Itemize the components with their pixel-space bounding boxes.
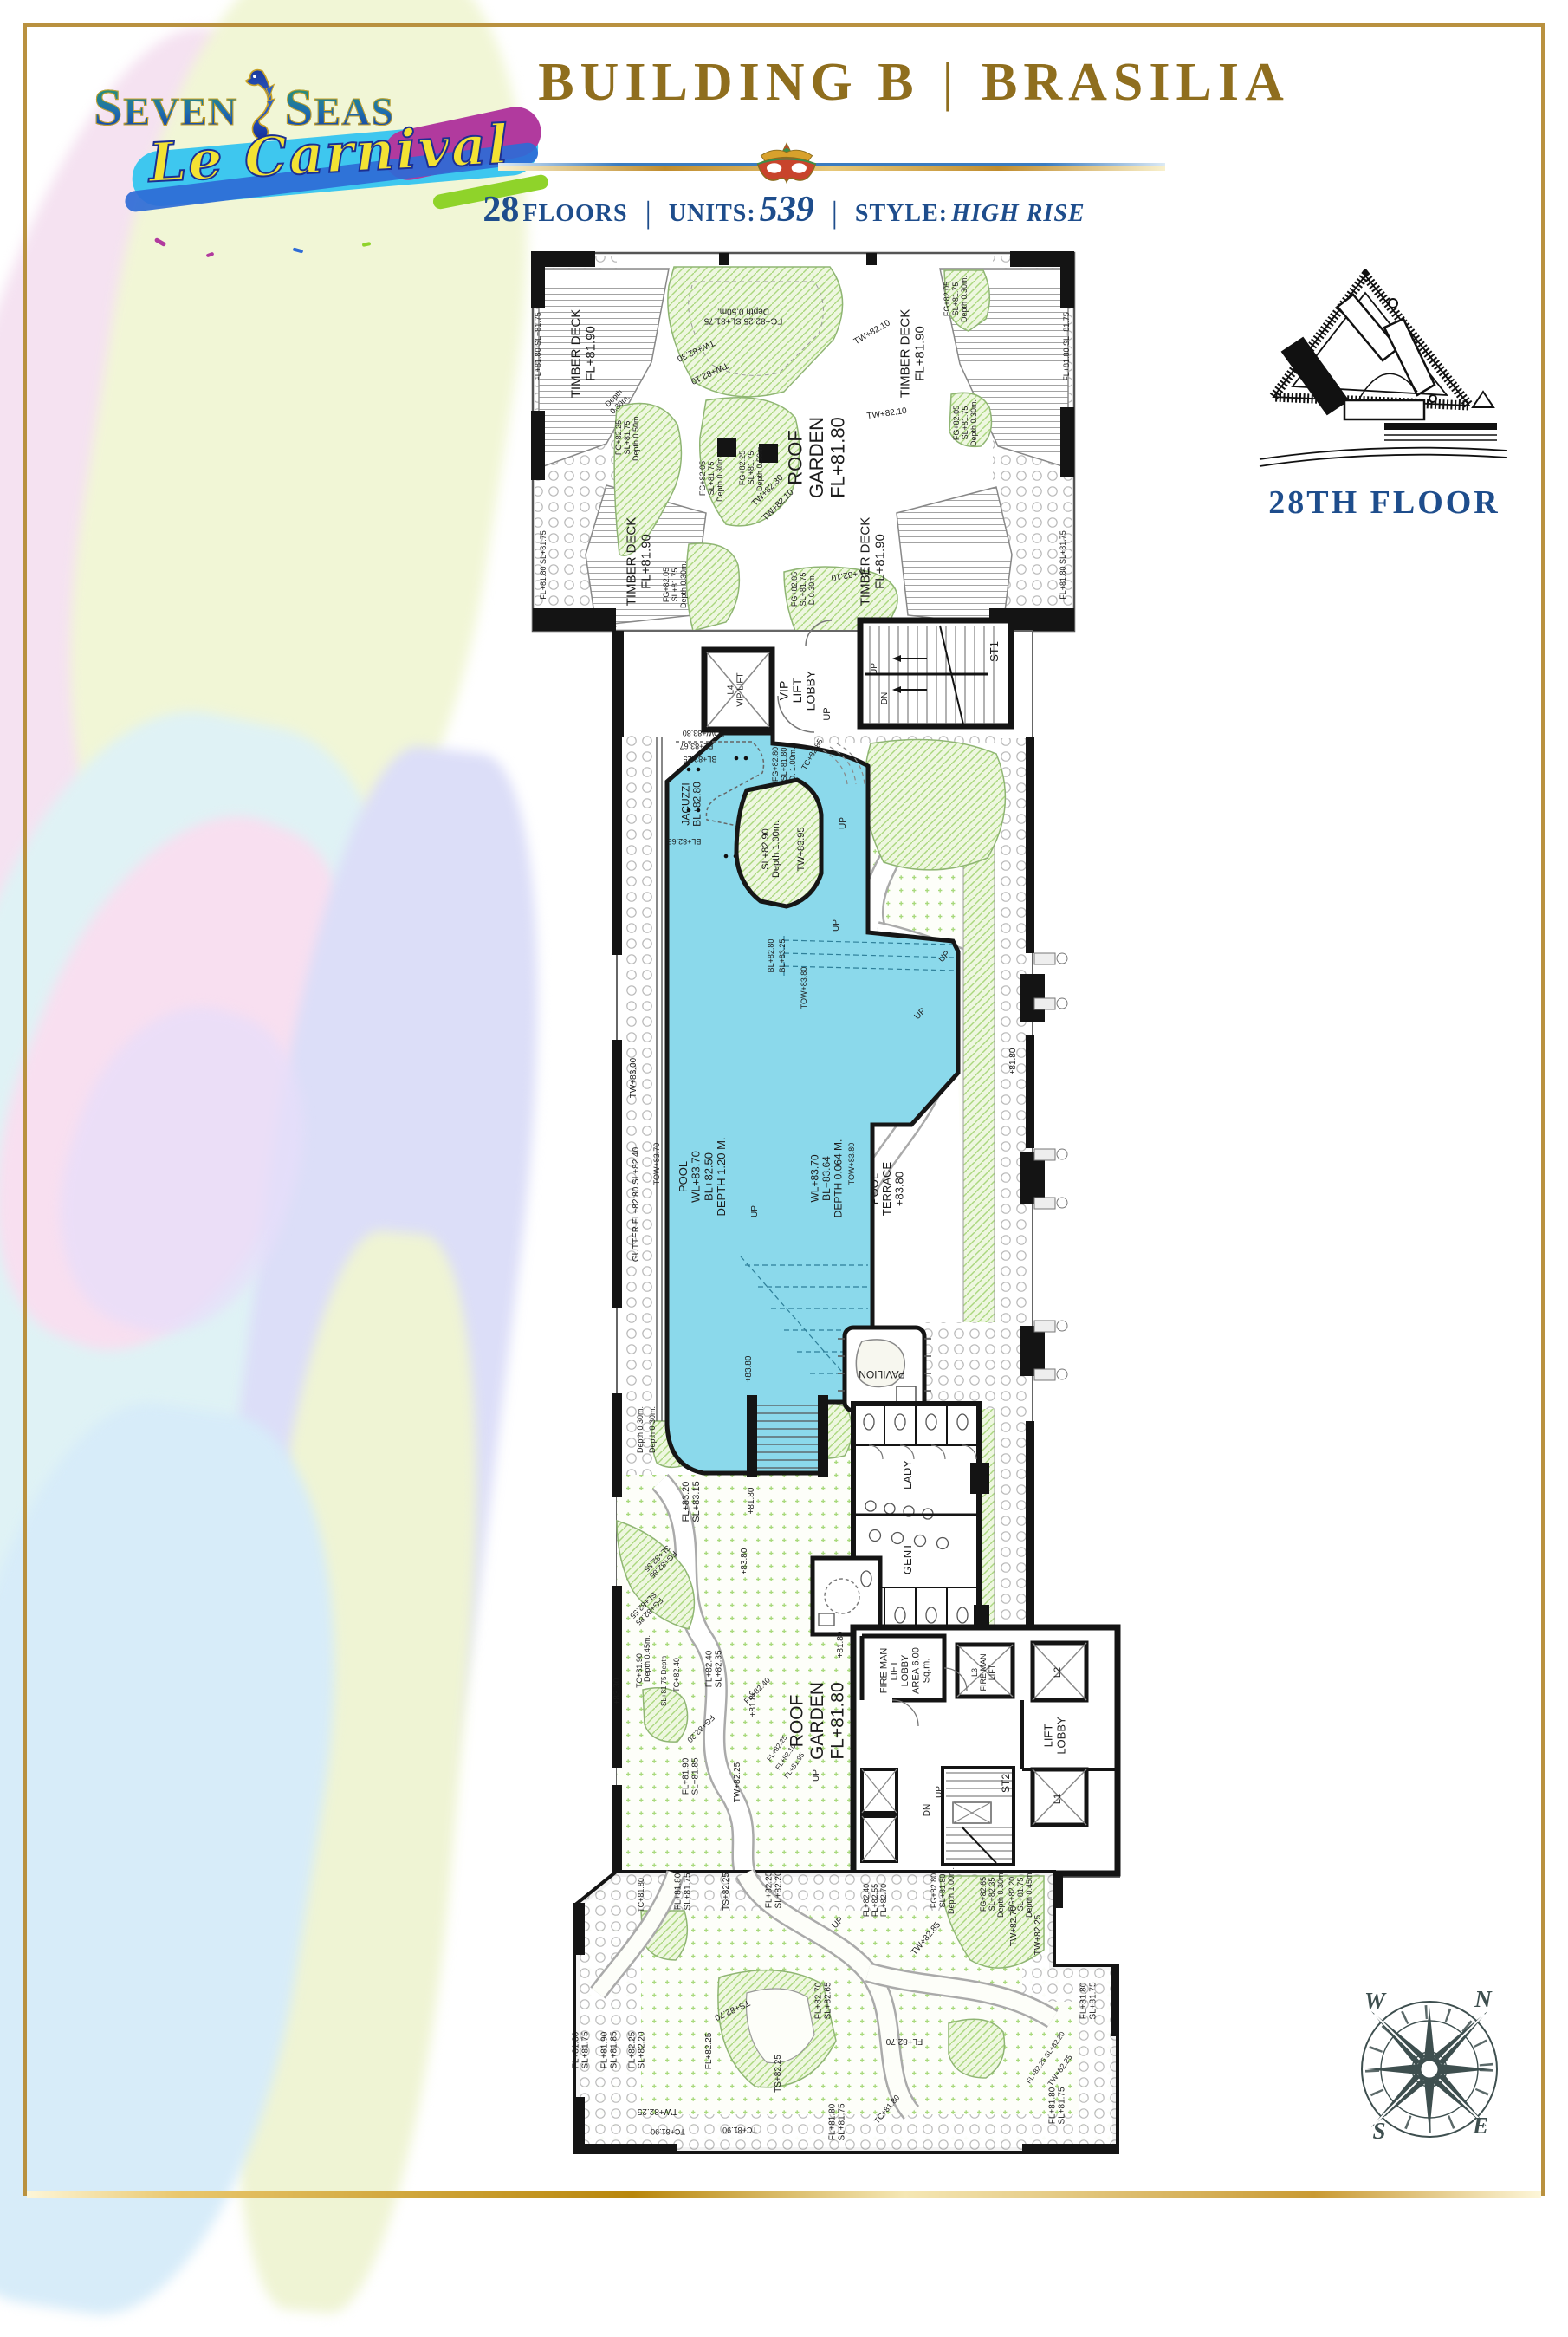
plan-label: TS+82.25	[774, 2055, 783, 2093]
title-separator: |	[920, 53, 982, 112]
plan-label: +83.80	[744, 1355, 754, 1382]
plan-label: TC+82.40	[672, 1658, 681, 1692]
plan-label: LADY	[901, 1460, 914, 1490]
plan-label: FL+81.90SL+81.85	[681, 1757, 700, 1795]
stair-st1	[860, 620, 1011, 726]
plan-label: TC+81.90	[635, 1653, 644, 1688]
compass-rose	[1313, 1953, 1546, 2186]
title-divider	[498, 163, 1165, 173]
plan-label: FG+82.25SL+81.75Depth 0.50m.	[738, 445, 764, 491]
plan-label: TOW+83.80	[683, 729, 725, 737]
site-key-plan-drawing	[1254, 269, 1514, 472]
plan-label: FL+82.25SL+82.20	[627, 2031, 646, 2069]
plan-label: TW+83.00	[629, 1057, 638, 1098]
plan-label: FL+82.70	[885, 2036, 923, 2046]
building-stats: 28 FLOORS | UNITS: 539 | STYLE: HIGH RIS…	[450, 189, 1118, 230]
plan-label: BL+82.65	[668, 837, 702, 846]
plan-label: FL+81.90SL+81.85	[599, 2031, 619, 2069]
plan-label: ST2	[1000, 1774, 1012, 1793]
plan-label: FG+82.05SL+81.75Depth 0.30m.	[698, 455, 724, 502]
plan-label: FG+82.25SL+81.75Depth 0.50m.	[614, 414, 640, 461]
accessible-toilet	[813, 1558, 880, 1634]
plan-label: FL+81.80SL+81.75	[827, 2103, 846, 2141]
plan-label: UP	[839, 817, 848, 829]
plan-label: FL+82.40SL+82.35	[704, 1650, 723, 1688]
plan-label: UP	[935, 1786, 944, 1798]
plan-label: UP	[822, 707, 833, 720]
plan-label: TW+82.70	[1009, 1905, 1019, 1946]
plan-label: TW+82.25	[637, 2107, 677, 2116]
style-value: HIGH RISE	[951, 200, 1085, 227]
tagline-le-carnival: Le Carnival	[147, 113, 511, 195]
plan-label: FG+82.05SL+81.75Depth 0.30m.	[943, 276, 969, 322]
plan-label: UP	[812, 1769, 821, 1782]
units-value: 539	[760, 190, 814, 230]
floors-label: FLOORS	[522, 200, 627, 227]
plan-label: TC+81.80	[637, 1878, 645, 1912]
stats-separator: |	[818, 195, 852, 230]
plan-label: FL+81.80SL+81.75	[673, 1873, 692, 1911]
plan-label: BL+82.80	[767, 939, 775, 973]
title-building: BUILDING B	[538, 53, 919, 112]
carnival-mask-icon	[749, 142, 824, 192]
bottom-gold-rule	[27, 2191, 1541, 2198]
plan-label: FL+81.80SL+81.75	[1047, 2087, 1066, 2125]
plan-label: GUTTER FL+82.80 SL+82.40	[632, 1146, 641, 1262]
plan-label: DN	[880, 692, 890, 704]
plan-label: FL+81.80 SL+81.75	[539, 530, 548, 600]
plan-label: FG+82.05SL+81.75D 0.30m.	[790, 572, 816, 607]
plan-label: GENT	[901, 1543, 914, 1574]
plan-label: FL+82.25SL+82.20	[764, 1871, 783, 1909]
paint-splatter	[362, 242, 372, 247]
plan-label: L2	[1053, 1667, 1063, 1678]
plan-label: +83.30	[612, 1678, 622, 1704]
plan-label: TOW+83.70	[652, 1143, 661, 1185]
plan-label: N	[1474, 1986, 1493, 2012]
plan-label: FL+82.40	[862, 1884, 871, 1917]
plan-label: BL+83.25	[684, 755, 717, 763]
floors-value: 28	[483, 190, 519, 230]
plan-label: UP	[870, 663, 879, 675]
plan-label: Depth 0.45m.	[643, 1635, 651, 1682]
plan-label: +81.80	[836, 1631, 846, 1658]
title-block: BUILDING B|BRASILIA 28 FLOORS | UNITS: 5…	[485, 52, 1343, 114]
floor-caption: 28TH FLOOR	[1254, 484, 1514, 522]
plan-label: TOW+83.80	[800, 967, 808, 1009]
plan-label: FL+82.55	[871, 1884, 879, 1917]
plan-label: FG+82.05SL+81.75Depth 0.30m.	[662, 562, 688, 608]
divider-gold-line	[498, 166, 1165, 171]
plan-label: +81.80	[747, 1487, 756, 1514]
plan-label: Depth 0.30m.	[636, 1406, 645, 1453]
plan-label: W	[1364, 1988, 1387, 2014]
plan-label: FL+81.80 SL+81.75	[1062, 312, 1071, 381]
plan-label: UP	[750, 1205, 760, 1217]
plan-label: L1	[1053, 1794, 1063, 1804]
plan-label: FL+82.70SL+82.65	[813, 1982, 833, 2020]
plan-label: FL+83.20SL+83.15	[681, 1481, 702, 1522]
plan-label: TOW+83.80	[847, 1143, 856, 1185]
plan-label: FL+82.25	[704, 2032, 714, 2069]
plan-label: FG+82.05SL+81.75Depth 0.30m.	[952, 399, 978, 446]
plan-label: UP	[832, 919, 841, 932]
plan-label: TW+83.95	[796, 827, 807, 871]
plan-label: JACUZZIBL+82.80	[679, 782, 703, 827]
plan-label: FG+82.80SL+81.80Depth 1.00m.	[930, 1867, 956, 1914]
style-label: STYLE:	[855, 200, 948, 227]
plan-label: FL+81.80 SL+81.75	[534, 312, 542, 381]
stats-separator: |	[632, 195, 665, 230]
tagline-brush-group: Le Carnival	[120, 105, 560, 257]
plan-label: BL+83.67	[680, 742, 714, 750]
plan-label: TW+82.25	[733, 1762, 742, 1802]
plan-label: DN	[923, 1804, 932, 1816]
plan-label: FG+82.80SL+81.80D. 1.00m.	[771, 747, 797, 782]
plan-label: S	[1372, 2118, 1385, 2144]
plan-label: TS+82.25	[722, 1873, 731, 1911]
plan-label: +83.80	[740, 1548, 749, 1574]
plan-label: SL+82.90Depth 1.00m.	[761, 821, 781, 878]
plan-label: BL+83.25	[778, 939, 787, 973]
plan-label: FL+81.80 SL+81.75	[1059, 530, 1067, 600]
plan-label: FG+82.65SL+82.35Depth 0.30m.	[979, 1871, 1005, 1918]
plan-label: Depth 0.30m.	[648, 1406, 657, 1453]
plan-label: ST1	[988, 641, 1001, 662]
title-tower: BRASILIA	[982, 53, 1290, 112]
page-title: BUILDING B|BRASILIA	[485, 52, 1343, 114]
plan-label: FL+82.70	[879, 1884, 888, 1917]
plan-label: E	[1472, 2113, 1488, 2139]
pavilion	[838, 1322, 998, 1411]
plan-label: SL+81.75 Depth	[660, 1656, 668, 1706]
units-label: UNITS:	[669, 200, 756, 227]
plan-label: +81.80	[1008, 1048, 1018, 1074]
key-plan: 28TH FLOOR	[1254, 269, 1514, 522]
plan-label: TC+81.90	[722, 2126, 757, 2134]
plan-label: TW+82.25	[1033, 1914, 1043, 1955]
plan-label: PAVILION	[859, 1368, 905, 1380]
plan-label: FL+81.80SL+81.75	[1079, 1982, 1098, 2020]
plan-label: TC+81.90	[651, 2127, 685, 2136]
plan-label: FL+81.80SL+81.75	[571, 2031, 590, 2069]
paint-splatter	[293, 248, 304, 254]
